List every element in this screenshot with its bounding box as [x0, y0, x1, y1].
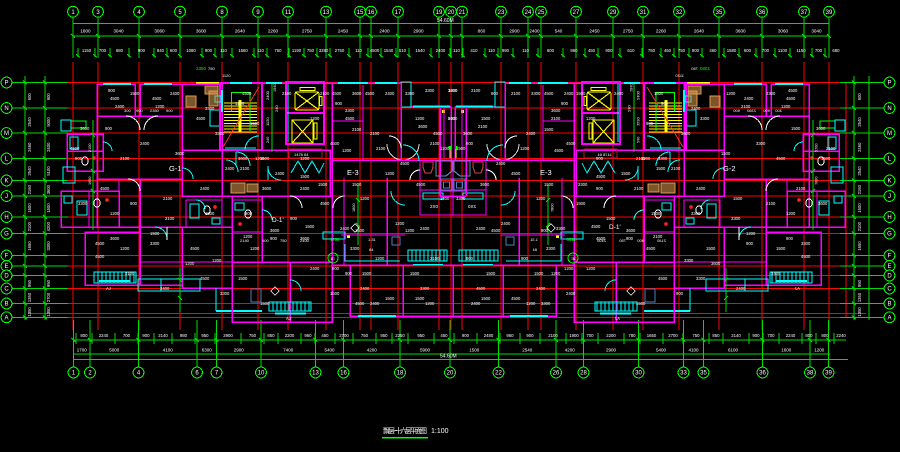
svg-text:2400: 2400 — [736, 286, 746, 291]
svg-text:1200: 1200 — [415, 116, 425, 121]
svg-text:3300: 3300 — [46, 241, 51, 251]
svg-text:11: 11 — [285, 10, 292, 16]
svg-text:1200: 1200 — [586, 266, 596, 271]
svg-text:1080: 1080 — [186, 48, 196, 53]
svg-text:1500: 1500 — [706, 246, 716, 251]
svg-text:3600: 3600 — [463, 131, 473, 136]
svg-text:900: 900 — [541, 228, 549, 233]
svg-text:2400: 2400 — [564, 91, 574, 96]
svg-text:3300: 3300 — [696, 276, 706, 281]
svg-text:900: 900 — [345, 271, 353, 276]
svg-text:110: 110 — [257, 48, 264, 53]
svg-text:4500: 4500 — [196, 116, 206, 121]
svg-text:600: 600 — [744, 48, 752, 53]
svg-text:35: 35 — [700, 371, 707, 377]
svg-text:1500: 1500 — [776, 246, 786, 251]
svg-text:N: N — [4, 106, 8, 112]
svg-text:700: 700 — [762, 48, 770, 53]
svg-text:G: G — [887, 232, 892, 238]
svg-text:600: 600 — [27, 93, 32, 101]
svg-text:3600: 3600 — [448, 88, 458, 93]
svg-text:1580: 1580 — [727, 48, 737, 53]
svg-text:2100: 2100 — [471, 88, 481, 93]
svg-text:2750: 2750 — [302, 29, 313, 34]
svg-text:1200: 1200 — [310, 116, 320, 121]
svg-text:17: 17 — [395, 10, 402, 16]
svg-text:4200: 4200 — [367, 348, 378, 353]
svg-text:2540: 2540 — [857, 166, 862, 176]
svg-text:2160: 2160 — [857, 184, 862, 194]
svg-text:2140: 2140 — [731, 333, 741, 338]
svg-text:2400: 2400 — [436, 48, 446, 53]
svg-text:5900: 5900 — [420, 348, 431, 353]
svg-text:600: 600 — [857, 93, 862, 101]
svg-text:2400: 2400 — [46, 142, 51, 152]
svg-text:750: 750 — [280, 238, 287, 243]
svg-text:2400: 2400 — [265, 90, 270, 100]
svg-text:680: 680 — [832, 48, 840, 53]
svg-text:3300: 3300 — [801, 241, 811, 246]
svg-text:750: 750 — [249, 333, 257, 338]
svg-text:900: 900 — [136, 108, 143, 113]
svg-text:1650: 1650 — [88, 177, 92, 185]
svg-text:3600: 3600 — [196, 29, 207, 34]
svg-text:1200: 1200 — [786, 211, 796, 216]
svg-text:4100: 4100 — [688, 348, 699, 353]
svg-text:2100: 2100 — [320, 91, 330, 96]
svg-text:1200: 1200 — [536, 196, 546, 201]
svg-text:4500: 4500 — [786, 96, 796, 101]
svg-text:38: 38 — [807, 371, 814, 377]
svg-text:2900: 2900 — [509, 29, 520, 34]
svg-text:2100: 2100 — [240, 166, 250, 171]
svg-text:1500: 1500 — [300, 174, 310, 179]
svg-text:4500: 4500 — [596, 236, 606, 241]
svg-text:2100: 2100 — [165, 216, 175, 221]
svg-text:7400: 7400 — [283, 348, 294, 353]
svg-text:110: 110 — [522, 48, 529, 53]
svg-text:680: 680 — [116, 48, 124, 53]
svg-text:800: 800 — [80, 333, 88, 338]
svg-text:1500: 1500 — [656, 166, 666, 171]
svg-text:2450: 2450 — [589, 29, 600, 34]
svg-text:1350: 1350 — [857, 307, 862, 317]
svg-text:3600: 3600 — [175, 151, 185, 156]
svg-text:900: 900 — [526, 333, 534, 338]
svg-text:20: 20 — [448, 10, 455, 16]
svg-text:1500: 1500 — [469, 348, 480, 353]
svg-text:460: 460 — [709, 48, 717, 53]
svg-text:5000: 5000 — [46, 117, 51, 127]
svg-text:2400: 2400 — [696, 186, 706, 191]
svg-text:1500: 1500 — [456, 146, 466, 151]
svg-text:4500: 4500 — [416, 182, 426, 187]
svg-text:2400: 2400 — [385, 91, 395, 96]
svg-text:600: 600 — [547, 48, 555, 53]
svg-text:31: 31 — [640, 10, 647, 16]
svg-text:6100: 6100 — [728, 348, 739, 353]
svg-text:1500: 1500 — [651, 211, 661, 216]
svg-text:2200: 2200 — [606, 333, 616, 338]
svg-text:1150: 1150 — [796, 48, 806, 53]
svg-text:4500: 4500 — [332, 91, 342, 96]
svg-text:1500: 1500 — [250, 121, 260, 126]
svg-text:1540: 1540 — [384, 48, 394, 53]
svg-text:3300: 3300 — [684, 258, 694, 263]
svg-text:39: 39 — [825, 371, 832, 377]
svg-text:2100: 2100 — [163, 196, 173, 201]
svg-text:D-1': D-1' — [609, 224, 621, 231]
svg-text:1500: 1500 — [362, 271, 372, 276]
svg-text:4500: 4500 — [554, 148, 564, 153]
svg-text:6300: 6300 — [202, 348, 213, 353]
svg-text:1650: 1650 — [647, 333, 657, 338]
svg-text:1200: 1200 — [551, 271, 561, 276]
svg-text:AJ: AJ — [106, 286, 111, 291]
svg-text:D-1': D-1' — [272, 217, 284, 224]
svg-text:1200: 1200 — [440, 146, 450, 151]
svg-text:32: 32 — [676, 10, 683, 16]
svg-text:2100: 2100 — [511, 91, 521, 96]
svg-text:1200: 1200 — [781, 104, 791, 109]
svg-text:1500: 1500 — [544, 182, 554, 187]
svg-text:2100: 2100 — [634, 186, 644, 191]
svg-text:950: 950 — [46, 279, 51, 287]
svg-text:G-1: G-1 — [169, 164, 182, 173]
svg-text:M: M — [887, 131, 892, 137]
svg-text:1500: 1500 — [821, 156, 831, 161]
svg-text:1800: 1800 — [352, 204, 356, 212]
svg-text:110: 110 — [355, 48, 362, 53]
svg-text:750: 750 — [208, 66, 215, 71]
svg-text:2400: 2400 — [300, 186, 310, 191]
svg-text:P: P — [887, 81, 891, 87]
svg-text:1200: 1200 — [255, 156, 265, 161]
svg-text:1500: 1500 — [330, 291, 340, 296]
svg-text:27: 27 — [573, 10, 580, 16]
svg-text:5400: 5400 — [656, 348, 667, 353]
svg-text:2400: 2400 — [476, 226, 486, 231]
svg-text:29: 29 — [610, 10, 617, 16]
svg-text:3300: 3300 — [456, 196, 466, 201]
svg-text:A: A — [4, 316, 8, 322]
svg-text:3600: 3600 — [480, 182, 490, 187]
svg-text:2240: 2240 — [836, 333, 846, 338]
svg-text:3600: 3600 — [46, 184, 51, 194]
svg-text:1200: 1200 — [110, 211, 120, 216]
svg-text:4500: 4500 — [433, 131, 443, 136]
svg-text:700: 700 — [586, 333, 594, 338]
svg-text:K: K — [887, 179, 891, 185]
svg-text:36: 36 — [759, 10, 766, 16]
svg-text:3300: 3300 — [405, 91, 415, 96]
svg-text:460: 460 — [664, 48, 672, 53]
svg-text:1500: 1500 — [238, 276, 248, 281]
svg-text:22: 22 — [495, 371, 502, 377]
svg-text:5400: 5400 — [324, 348, 335, 353]
svg-text:2540: 2540 — [522, 348, 533, 353]
svg-text:J: J — [888, 194, 891, 200]
svg-text:4500: 4500 — [511, 171, 521, 176]
svg-text:900: 900 — [138, 48, 146, 53]
svg-text:300: 300 — [124, 108, 131, 113]
svg-text:1500: 1500 — [636, 301, 646, 306]
svg-text:2700: 2700 — [668, 333, 678, 338]
svg-text:1500: 1500 — [721, 151, 731, 156]
svg-text:1500: 1500 — [857, 203, 862, 213]
svg-text:4500: 4500 — [110, 96, 120, 101]
svg-text:1200: 1200 — [120, 246, 130, 251]
svg-text:3300: 3300 — [345, 108, 355, 113]
svg-text:1500: 1500 — [486, 271, 496, 276]
svg-text:3040: 3040 — [113, 29, 124, 34]
svg-text:3600: 3600 — [711, 261, 721, 266]
svg-text:3300: 3300 — [578, 182, 588, 187]
svg-text:800: 800 — [821, 333, 829, 338]
svg-text:1500: 1500 — [534, 271, 544, 276]
svg-text:26: 26 — [553, 371, 560, 377]
svg-text:1500: 1500 — [27, 203, 32, 213]
svg-text:1200: 1200 — [235, 101, 245, 106]
svg-text:2100: 2100 — [741, 104, 751, 109]
svg-text:54.60M: 54.60M — [437, 18, 454, 24]
svg-text:3600: 3600 — [238, 156, 248, 161]
svg-text:4500: 4500 — [320, 201, 330, 206]
svg-text:3300: 3300 — [531, 91, 541, 96]
svg-text:N: N — [887, 106, 891, 112]
svg-text:4500: 4500 — [566, 141, 576, 146]
svg-text:F: F — [5, 254, 9, 260]
svg-text:900: 900 — [105, 126, 113, 131]
svg-text:2400: 2400 — [170, 91, 180, 96]
svg-text:2160: 2160 — [27, 184, 32, 194]
svg-text:1:100: 1:100 — [431, 428, 449, 435]
svg-text:3600: 3600 — [270, 228, 280, 233]
svg-text:900: 900 — [335, 101, 343, 106]
svg-text:1190: 1190 — [292, 48, 302, 53]
svg-text:900: 900 — [561, 101, 569, 106]
svg-text:1350: 1350 — [27, 292, 32, 302]
svg-text:3600: 3600 — [418, 124, 428, 129]
svg-text:4500: 4500 — [365, 91, 375, 96]
svg-text:2400: 2400 — [529, 29, 540, 34]
svg-text:2400: 2400 — [115, 104, 125, 109]
svg-text:1200: 1200 — [440, 196, 450, 201]
svg-text:1500: 1500 — [415, 296, 425, 301]
svg-text:1500: 1500 — [576, 91, 586, 96]
svg-text:3600: 3600 — [80, 126, 90, 131]
svg-text:2750: 2750 — [335, 48, 345, 53]
svg-text:1560: 1560 — [238, 48, 248, 53]
svg-text:25: 25 — [538, 10, 545, 16]
svg-text:28: 28 — [580, 371, 587, 377]
svg-text:1200: 1200 — [526, 301, 536, 306]
svg-text:2400: 2400 — [310, 266, 320, 271]
svg-text:2400: 2400 — [160, 286, 170, 291]
svg-text:110: 110 — [488, 48, 495, 53]
svg-text:H: H — [887, 215, 891, 221]
svg-text:20: 20 — [447, 371, 454, 377]
svg-text:2400: 2400 — [744, 96, 754, 101]
svg-text:4500: 4500 — [200, 276, 210, 281]
svg-text:1500: 1500 — [150, 231, 160, 236]
svg-text:900: 900 — [46, 93, 51, 101]
svg-text:900: 900 — [626, 236, 634, 241]
svg-text:1350: 1350 — [46, 307, 51, 317]
svg-text:4500: 4500 — [152, 96, 162, 101]
svg-text:1200: 1200 — [212, 258, 222, 263]
svg-text:2400: 2400 — [420, 226, 430, 231]
svg-text:1650: 1650 — [27, 241, 32, 251]
svg-text:610: 610 — [627, 48, 635, 53]
svg-text:3300: 3300 — [658, 156, 668, 161]
svg-text:1200: 1200 — [243, 234, 253, 239]
svg-text:13: 13 — [312, 371, 319, 377]
svg-text:900: 900 — [752, 333, 760, 338]
svg-text:900: 900 — [166, 108, 173, 113]
svg-text:960: 960 — [506, 333, 514, 338]
svg-text:2400: 2400 — [471, 301, 481, 306]
svg-text:1600: 1600 — [781, 348, 792, 353]
svg-text:1500: 1500 — [481, 116, 491, 121]
svg-text:2640: 2640 — [694, 29, 705, 34]
svg-text:2400: 2400 — [140, 141, 150, 146]
svg-text:13: 13 — [323, 10, 330, 16]
svg-text:2100: 2100 — [88, 144, 92, 152]
svg-text:2400: 2400 — [566, 291, 576, 296]
svg-text:2350: 2350 — [196, 66, 207, 71]
svg-text:1350: 1350 — [27, 307, 32, 317]
svg-text:2540: 2540 — [27, 166, 32, 176]
svg-text:700: 700 — [123, 333, 131, 338]
svg-text:3300: 3300 — [215, 131, 225, 136]
svg-text:900: 900 — [245, 211, 253, 216]
svg-text:2100: 2100 — [826, 146, 836, 151]
svg-text:4500: 4500 — [330, 141, 340, 146]
svg-text:1500: 1500 — [410, 271, 420, 276]
svg-text:2400: 2400 — [691, 106, 701, 111]
svg-text:3600: 3600 — [816, 126, 826, 131]
svg-text:900: 900 — [692, 48, 700, 53]
svg-text:F: F — [888, 254, 892, 260]
svg-text:1150: 1150 — [82, 48, 92, 53]
svg-text:900: 900 — [605, 48, 613, 53]
svg-text:1500: 1500 — [318, 182, 328, 187]
svg-text:450: 450 — [440, 333, 448, 338]
svg-text:33: 33 — [680, 371, 687, 377]
svg-text:860: 860 — [478, 29, 486, 34]
svg-text:900: 900 — [75, 156, 83, 161]
svg-text:E: E — [887, 264, 891, 270]
svg-text:5100: 5100 — [46, 166, 51, 176]
svg-text:850: 850 — [267, 333, 275, 338]
svg-text:1350: 1350 — [857, 292, 862, 302]
svg-text:900: 900 — [646, 121, 654, 126]
svg-text:1200: 1200 — [155, 104, 165, 109]
svg-text:3600: 3600 — [551, 108, 561, 113]
svg-text:110: 110 — [453, 48, 460, 53]
svg-text:2200: 2200 — [285, 333, 295, 338]
svg-text:4500: 4500 — [596, 174, 606, 179]
svg-text:4500: 4500 — [370, 48, 380, 53]
svg-text:750: 750 — [361, 333, 369, 338]
svg-text:2480: 2480 — [484, 333, 494, 338]
svg-text:2100: 2100 — [857, 221, 862, 231]
svg-text:3600: 3600 — [681, 131, 691, 136]
svg-text:1E: 1E — [330, 256, 335, 261]
svg-text:16: 16 — [368, 10, 375, 16]
svg-text:3300: 3300 — [541, 301, 551, 306]
svg-text:750: 750 — [307, 48, 315, 53]
svg-text:2900: 2900 — [234, 348, 245, 353]
svg-text:900: 900 — [108, 88, 116, 93]
svg-text:900: 900 — [596, 156, 604, 161]
svg-text:B: B — [887, 302, 891, 308]
svg-text:2400: 2400 — [370, 301, 380, 306]
svg-text:D: D — [887, 274, 892, 280]
svg-text:2100: 2100 — [548, 333, 558, 338]
svg-text:3600: 3600 — [818, 201, 828, 206]
svg-text:2100: 2100 — [125, 271, 135, 276]
svg-text:750: 750 — [274, 48, 282, 53]
svg-text:2540: 2540 — [857, 117, 862, 127]
svg-text:1200: 1200 — [814, 348, 825, 353]
svg-text:700: 700 — [99, 48, 107, 53]
svg-text:23: 23 — [498, 10, 505, 16]
svg-text:750: 750 — [648, 48, 656, 53]
svg-text:3040: 3040 — [811, 29, 822, 34]
svg-text:990: 990 — [502, 48, 510, 53]
svg-text:E-3: E-3 — [347, 168, 359, 177]
svg-text:800: 800 — [805, 333, 813, 338]
svg-text:1200: 1200 — [405, 228, 415, 233]
svg-text:2100: 2100 — [653, 234, 663, 239]
svg-text:37: 37 — [801, 10, 808, 16]
svg-text:3300: 3300 — [78, 201, 88, 206]
svg-text:2640: 2640 — [235, 29, 246, 34]
svg-text:P: P — [4, 81, 8, 87]
svg-text:2400: 2400 — [200, 186, 210, 191]
svg-text:1540: 1540 — [273, 84, 277, 92]
svg-text:700: 700 — [815, 48, 823, 53]
svg-text:2100: 2100 — [282, 91, 292, 96]
svg-text:3300: 3300 — [420, 286, 430, 291]
svg-text:B: B — [4, 302, 8, 308]
svg-text:4500: 4500 — [658, 276, 668, 281]
svg-text:G-2: G-2 — [723, 164, 736, 173]
svg-text:3600: 3600 — [110, 236, 120, 241]
svg-text:1500: 1500 — [654, 91, 664, 96]
svg-text:E: E — [4, 264, 8, 270]
svg-text:2100: 2100 — [430, 256, 440, 261]
svg-text:950: 950 — [857, 279, 862, 287]
svg-text:3600: 3600 — [735, 29, 746, 34]
svg-text:2400: 2400 — [614, 91, 624, 96]
svg-text:240: 240 — [266, 137, 270, 143]
svg-text:960: 960 — [304, 333, 312, 338]
svg-text:1200: 1200 — [385, 171, 395, 176]
svg-text:4500: 4500 — [511, 296, 521, 301]
svg-text:2100: 2100 — [551, 116, 561, 121]
svg-text:D: D — [4, 274, 9, 280]
svg-text:3300: 3300 — [731, 216, 741, 221]
svg-text:2100: 2100 — [796, 186, 806, 191]
svg-text:850: 850 — [712, 333, 720, 338]
svg-text:4500: 4500 — [95, 241, 105, 246]
svg-text:G: G — [4, 232, 9, 238]
svg-text:1500: 1500 — [621, 171, 631, 176]
svg-text:1200: 1200 — [300, 156, 310, 161]
